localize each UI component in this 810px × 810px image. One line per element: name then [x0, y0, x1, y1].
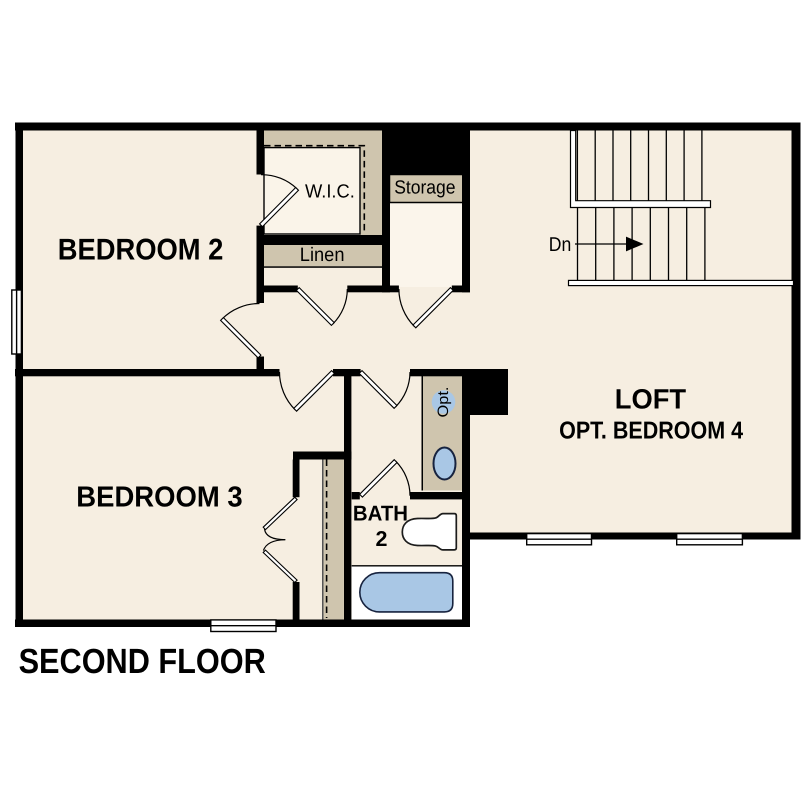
svg-text:SECOND FLOOR: SECOND FLOOR	[19, 642, 266, 681]
svg-text:BEDROOM 3: BEDROOM 3	[76, 482, 242, 514]
svg-text:W.I.C.: W.I.C.	[305, 182, 355, 203]
svg-text:Opt.: Opt.	[435, 387, 452, 418]
svg-text:2: 2	[376, 527, 388, 551]
svg-text:OPT. BEDROOM 4: OPT. BEDROOM 4	[559, 418, 743, 445]
svg-text:BEDROOM 2: BEDROOM 2	[58, 233, 224, 266]
svg-text:Linen: Linen	[300, 244, 345, 266]
svg-text:LOFT: LOFT	[615, 384, 686, 415]
svg-text:Dn: Dn	[549, 234, 572, 256]
svg-text:BATH: BATH	[353, 502, 408, 526]
svg-text:Storage: Storage	[394, 178, 455, 199]
